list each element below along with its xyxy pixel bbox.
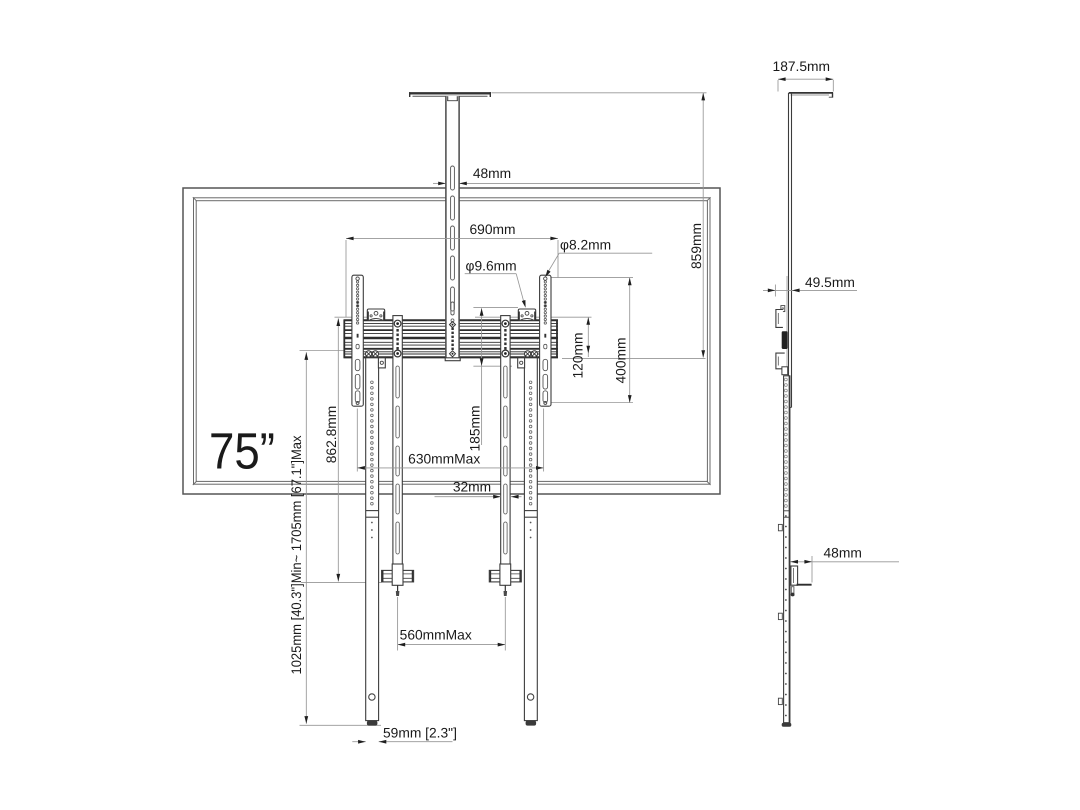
svg-text:187.5mm: 187.5mm [773, 59, 831, 74]
svg-text:32mm: 32mm [453, 480, 491, 495]
svg-text:630mmMax: 630mmMax [408, 452, 480, 467]
svg-text:49.5mm: 49.5mm [805, 275, 855, 290]
svg-text:859mm: 859mm [689, 223, 704, 269]
svg-text:560mmMax: 560mmMax [400, 628, 472, 643]
svg-text:59mm [2.3"]: 59mm [2.3"] [383, 726, 457, 741]
svg-text:120mm: 120mm [571, 332, 586, 378]
svg-text:φ9.6mm: φ9.6mm [466, 259, 517, 274]
svg-text:690mm: 690mm [469, 222, 515, 237]
svg-text:48mm: 48mm [473, 166, 511, 181]
svg-text:400mm: 400mm [614, 337, 629, 383]
svg-text:862.8mm: 862.8mm [324, 406, 339, 464]
svg-text:1025mm [40.3"]Min~ 1705mm [67.: 1025mm [40.3"]Min~ 1705mm [67.1"]Max [289, 435, 304, 674]
svg-text:75”: 75” [209, 423, 275, 480]
svg-text:185mm: 185mm [468, 405, 483, 451]
svg-text:φ8.2mm: φ8.2mm [560, 238, 611, 253]
svg-text:48mm: 48mm [824, 546, 862, 561]
